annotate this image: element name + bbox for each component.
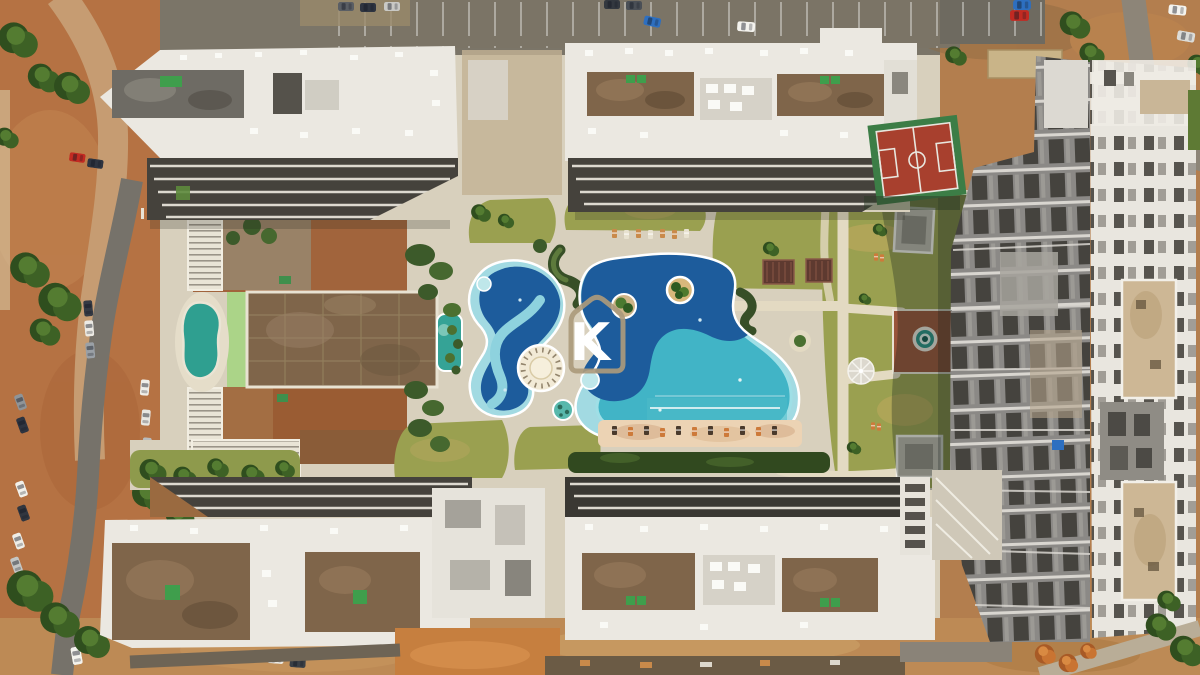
rubble-strip <box>900 642 1012 662</box>
teal-pond <box>175 292 229 392</box>
green-strip <box>227 292 247 387</box>
green-roof-vent <box>165 585 180 600</box>
dark-roof-block <box>273 73 302 114</box>
roof-slab-top <box>1044 60 1088 128</box>
parked-car <box>384 2 400 11</box>
stair-core <box>900 477 930 555</box>
parked-car <box>141 409 151 426</box>
terraces-southeast <box>147 158 458 220</box>
green-roof-vent <box>160 76 182 87</box>
blue-tarp <box>1052 440 1064 450</box>
aerial-photo-canvas: Top-down aerial view of a residential co… <box>0 0 1200 675</box>
parked-car-red <box>1010 10 1029 21</box>
kids-pool <box>553 400 573 420</box>
spiral-deck <box>518 345 564 391</box>
sand-deck <box>598 420 802 447</box>
slab-court <box>247 292 437 387</box>
east-green-strip <box>1188 90 1200 150</box>
dome-umbrella <box>848 358 874 384</box>
palm-planter <box>612 294 636 318</box>
parked-car <box>604 0 620 9</box>
pool-right-spa <box>581 371 599 389</box>
building-top-left <box>100 46 458 229</box>
parked-car <box>626 1 642 10</box>
building-shadow <box>150 220 450 229</box>
watermark-letter: K <box>570 313 612 373</box>
service-road <box>545 656 905 675</box>
parked-car <box>140 379 150 396</box>
building-shadow <box>575 212 905 220</box>
parked-car <box>83 300 93 317</box>
dirt-patch <box>300 430 408 464</box>
building-top-middle <box>565 28 917 220</box>
green-roof-vent <box>353 590 367 604</box>
parked-car-white <box>737 21 755 32</box>
parked-car <box>360 3 376 12</box>
construction-building-white <box>1090 60 1200 638</box>
parked-car <box>338 2 354 11</box>
courtyard <box>130 190 1006 490</box>
roof-panel-top <box>1140 80 1190 114</box>
parked-car <box>84 320 94 337</box>
court-hedge <box>864 196 960 210</box>
palm-island <box>667 277 693 303</box>
pool-left-spa <box>477 277 491 291</box>
roof-panel-a <box>1122 280 1176 398</box>
terraces-south <box>568 158 910 212</box>
aerial-photo: Top-down aerial view of a residential co… <box>0 0 1200 675</box>
parked-car <box>1168 4 1187 16</box>
basketball-court <box>867 115 966 205</box>
roof-panel-b <box>1122 482 1176 600</box>
parked-car <box>85 342 95 359</box>
parked-car <box>1013 0 1031 10</box>
terraces-north <box>150 477 472 517</box>
annex-white <box>432 488 545 618</box>
terraces-north <box>565 477 930 517</box>
